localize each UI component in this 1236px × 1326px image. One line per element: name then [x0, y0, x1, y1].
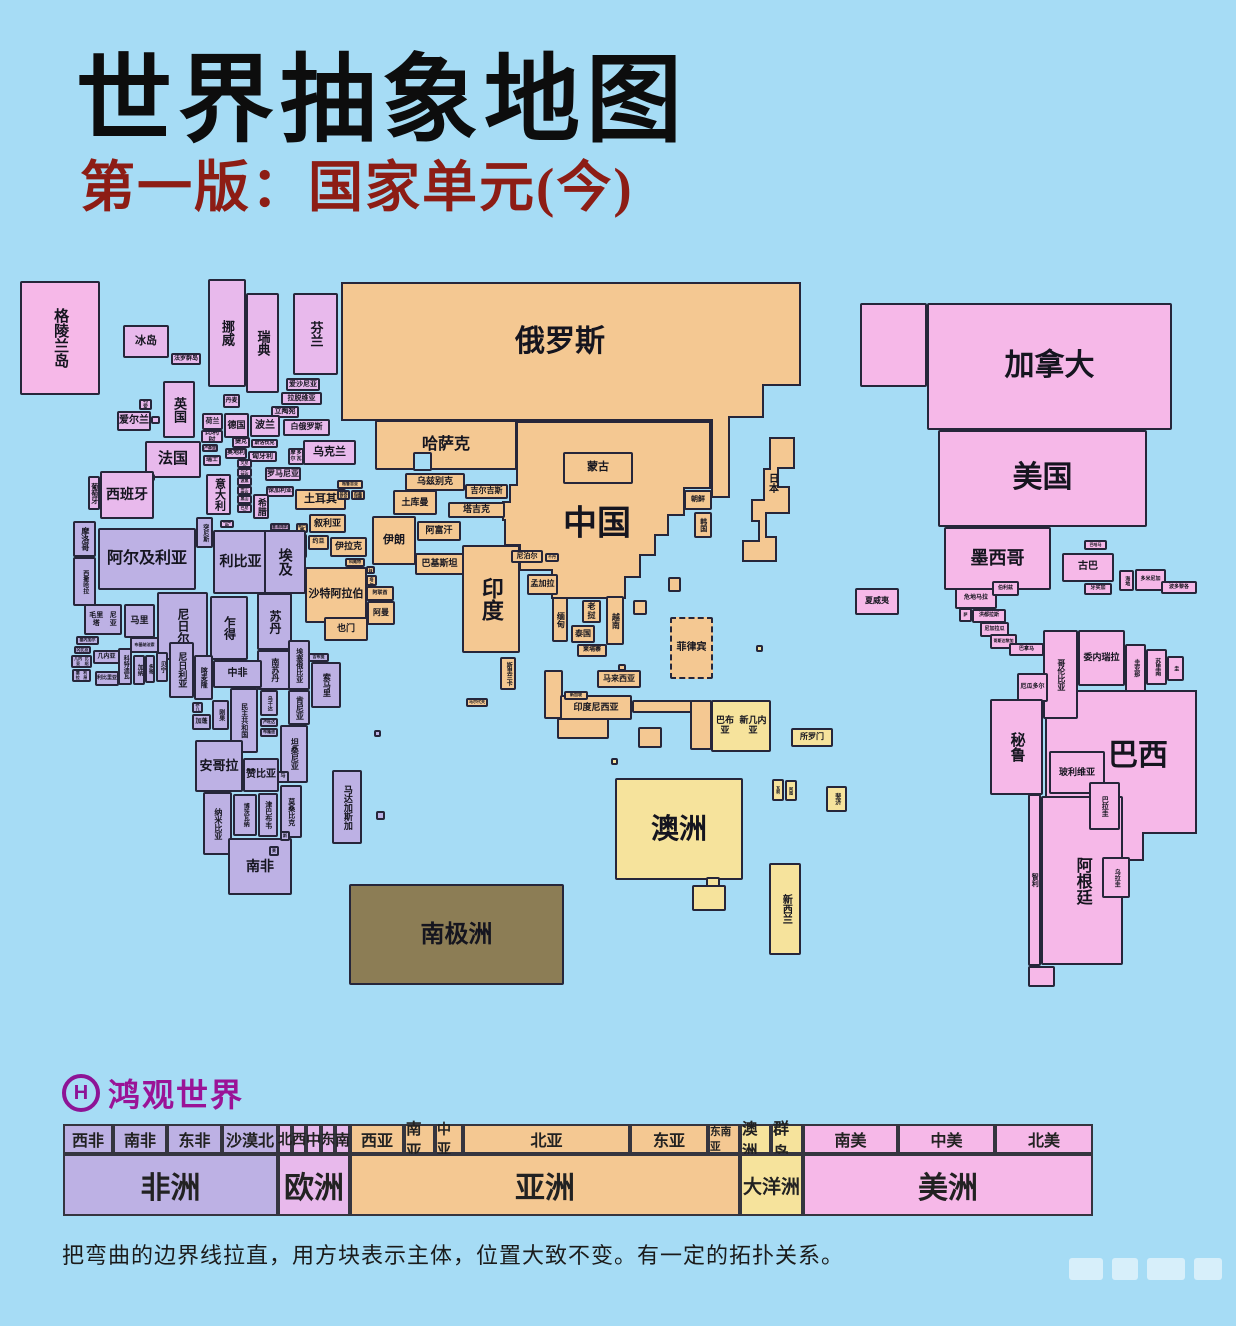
watermark-blob [1112, 1258, 1138, 1280]
legend-subregion-cell: 群岛 [771, 1124, 803, 1154]
legend-subregion-cell: 中美 [898, 1124, 995, 1154]
legend-subregion-cell: 澳洲 [740, 1124, 771, 1154]
legend-subregion-cell: 南 [335, 1124, 350, 1154]
legend-subregion-cell: 西亚 [350, 1124, 404, 1154]
legend-subregion-cell: 中 [306, 1124, 321, 1154]
legend-subregion-cell: 沙漠北 [222, 1124, 278, 1154]
legend-subregion-cell: 西 [292, 1124, 306, 1154]
continent-legend: 西非南非东非沙漠北非洲北西中东南欧洲西亚南亚中亚北亚东亚东南亚亚洲澳洲群岛大洋洲… [0, 0, 1236, 1326]
legend-subregion-cell: 南非 [113, 1124, 167, 1154]
legend-subregion-cell: 东 [321, 1124, 335, 1154]
watermark-blob [1069, 1258, 1103, 1280]
logo-h-icon: H [62, 1074, 100, 1112]
legend-continent-cell: 大洋洲 [740, 1154, 803, 1216]
legend-subregion-cell: 北美 [995, 1124, 1093, 1154]
watermark [1069, 1258, 1222, 1280]
caption-text: 把弯曲的边界线拉直，用方块表示主体，位置大致不变。有一定的拓扑关系。 [62, 1238, 844, 1270]
legend-subregion-cell: 南亚 [404, 1124, 435, 1154]
legend-subregion-cell: 南美 [803, 1124, 898, 1154]
legend-continent-cell: 亚洲 [350, 1154, 740, 1216]
legend-continent-cell: 美洲 [803, 1154, 1093, 1216]
legend-subregion-cell: 中亚 [435, 1124, 463, 1154]
legend-subregion-cell: 东南亚 [708, 1124, 740, 1154]
logo: H 鸿观世界 [62, 1072, 244, 1114]
watermark-blob [1147, 1258, 1185, 1280]
legend-subregion-cell: 东亚 [630, 1124, 708, 1154]
legend-subregion-cell: 西非 [63, 1124, 113, 1154]
watermark-blob [1194, 1258, 1222, 1280]
legend-continent-cell: 欧洲 [278, 1154, 350, 1216]
legend-continent-cell: 非洲 [63, 1154, 278, 1216]
legend-subregion-cell: 北亚 [463, 1124, 630, 1154]
logo-text: 鸿观世界 [108, 1070, 244, 1116]
legend-subregion-cell: 北 [278, 1124, 292, 1154]
legend-subregion-cell: 东非 [167, 1124, 222, 1154]
